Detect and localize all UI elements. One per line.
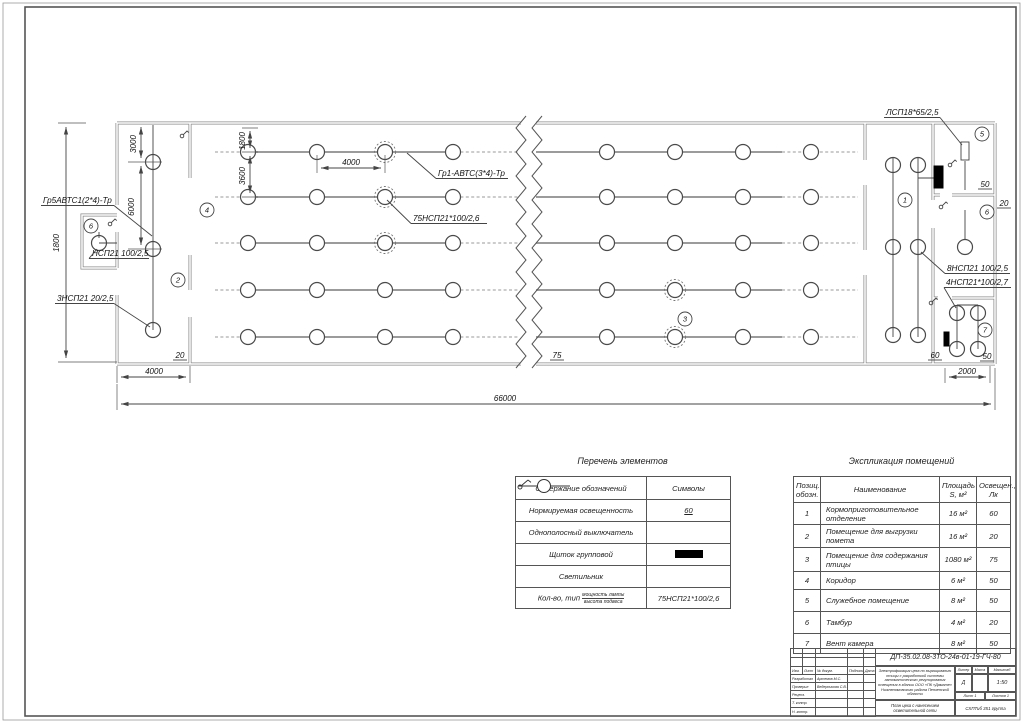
lamp-power-height-fraction: мощность лампы высота подвеса [582, 592, 624, 605]
lamp-icon [736, 330, 751, 345]
cell-pos: 1 [794, 503, 821, 525]
lamp-icon [600, 283, 615, 298]
lamp-icon [378, 190, 393, 205]
person-name [816, 699, 848, 708]
lamp-icon [736, 236, 751, 251]
liter-value: Д [955, 674, 972, 692]
cell-name: Помещение для содержания птицы [821, 548, 940, 572]
group-panels [934, 166, 949, 346]
massa-value [972, 674, 988, 692]
dim-total-length: 66000 [494, 394, 517, 403]
room-marker: 1 [898, 193, 912, 207]
col-podpis: Подпись [848, 667, 864, 675]
lamp-icon [241, 330, 256, 345]
lamp-icon [446, 145, 461, 160]
cell-pos: 3 [794, 548, 821, 572]
sheets-total: Листов 1 [985, 692, 1016, 700]
table-row: 4Коридор6 м²50 [794, 572, 1011, 590]
legend-table: Содержание обозначений Символы Нормируем… [515, 476, 731, 609]
lamp-icon [378, 283, 393, 298]
cell-pos: 4 [794, 572, 821, 590]
legend-row-name: Светильник [516, 566, 647, 588]
dim-lamp-step: 4000 [342, 158, 360, 167]
legend-lux-value: 60 [684, 506, 692, 515]
lamp-icon [378, 236, 393, 251]
label-gr1: Гр1-АВТС(3*4)-Тр [438, 169, 505, 178]
group-panel-icon [675, 550, 703, 558]
table-row: Щиток групповой [516, 544, 731, 566]
title-block-left-grid: Изм. Лист № докум. Подпись Дата Разработ… [790, 648, 876, 717]
room-number: 4 [205, 206, 209, 215]
doc-number: ДП-35.02.08-3ТО-24в-01-19-ГЧ-80 [875, 648, 1016, 666]
panel-symbol-cell [647, 544, 731, 566]
person-name: Артемов М.С. [816, 675, 848, 683]
room-marker: 4 [200, 203, 214, 217]
cell-lux: 50 [977, 590, 1011, 612]
label-nsp20: 3НСП21 20/2,5 [57, 294, 114, 303]
scale-value: 1:50 [988, 674, 1016, 692]
room-number: 6 [89, 222, 94, 231]
room-number: 2 [175, 276, 181, 285]
sheet-number: Лист 1 [955, 692, 985, 700]
header-area: Площадь S, м² [940, 477, 977, 503]
lux-room7a: 60 [931, 351, 940, 360]
explication-table: Позиц. обозн. Наименование Площадь S, м²… [793, 476, 1011, 654]
lamp-icon [600, 330, 615, 345]
lamp-icon [241, 283, 256, 298]
role-label: Разработал [791, 675, 816, 683]
table-row: Светильник [516, 566, 731, 588]
lamp-icon [736, 190, 751, 205]
room-marker: 6 [84, 219, 98, 233]
switch-dot [939, 205, 943, 209]
table-header-row: Изм. Лист № докум. Подпись Дата [791, 667, 876, 675]
dim-row2: 3600 [238, 167, 247, 185]
switch-dot [180, 134, 184, 138]
cell-area: 16 м² [940, 503, 977, 525]
cell-pos: 6 [794, 612, 821, 634]
lamp-icon [446, 236, 461, 251]
legend-row-name: Щиток групповой [516, 544, 647, 566]
col-list: Лист [803, 667, 816, 675]
dim-row1: 1800 [238, 132, 247, 150]
switch-lever [942, 202, 948, 206]
cell-pos: 2 [794, 525, 821, 548]
switch-icon [948, 160, 957, 167]
table-row: 2Помещение для выгрузки помета16 м²20 [794, 525, 1011, 548]
lamp-grid [92, 142, 986, 357]
project-description: Электрификация цеха по выращиванию птицы… [875, 666, 955, 700]
switch-dot [948, 163, 952, 167]
switch-icon [108, 219, 117, 226]
scale-label: Масштаб [988, 666, 1016, 674]
label-gr5: Гр5АВТС1(2*4)-Тр [43, 196, 112, 205]
liter-label: Литер [955, 666, 972, 674]
table-row: Кол-во, тип мощность лампы высота подвес… [516, 588, 731, 609]
table-row: 1Кормоприготовительное отделение16 м²60 [794, 503, 1011, 525]
luminaire-icon [516, 477, 572, 495]
cell-area: 6 м² [940, 572, 977, 590]
switch-icon [180, 131, 189, 138]
cell-lux: 20 [977, 525, 1011, 548]
title-block: Изм. Лист № докум. Подпись Дата Разработ… [790, 648, 1016, 716]
lamp-icon [446, 283, 461, 298]
legend-title: Перечень элементов [515, 456, 730, 466]
table-row: 3Помещение для содержания птицы1080 м²75 [794, 548, 1011, 572]
dim-3000: 3000 [129, 135, 138, 153]
label-nsp100: НСП21 100/2,5 [92, 249, 149, 258]
room-number: 1 [903, 196, 907, 205]
room-marker: 2 [171, 273, 185, 287]
drawing-title: План цеха с нанесением осветительной сет… [875, 700, 955, 716]
lamp-icon [804, 330, 819, 345]
lamp-icon [668, 145, 683, 160]
lamp-icon [600, 190, 615, 205]
label-nsp75: 75НСП21*100/2,6 [413, 214, 480, 223]
col-izm: Изм. [791, 667, 803, 675]
cell-lux: 20 [977, 612, 1011, 634]
switch-lever [951, 160, 957, 164]
lamp-icon [600, 145, 615, 160]
lux-hall: 75 [553, 351, 562, 360]
room-number: 7 [983, 326, 988, 335]
table-row: Т. контр. [791, 699, 876, 708]
lamp-icon [804, 190, 819, 205]
lamp-icon [736, 283, 751, 298]
group-name: СХПТиб 351 группа [955, 700, 1016, 716]
cell-lux: 60 [977, 503, 1011, 525]
cell-name: Кормоприготовительное отделение [821, 503, 940, 525]
legend-type-value: 75НСП21*100/2,6 [647, 588, 731, 609]
lamp-icon [310, 283, 325, 298]
switch-lever [111, 219, 117, 223]
cell-lux: 50 [977, 572, 1011, 590]
col-data: Дата [864, 667, 876, 675]
lamp-icon [958, 240, 973, 255]
lamp-icon [600, 236, 615, 251]
room-marker: 3 [678, 312, 692, 326]
room-number: 5 [980, 130, 985, 139]
legend-row-name: Нормируемая освещенность [516, 500, 647, 522]
person-name: Ведерникова С.В. [816, 683, 848, 691]
dim-height: 1800 [52, 234, 61, 252]
header-lux: Освещен., Лк [977, 477, 1011, 503]
lux-room5: 50 [981, 180, 990, 189]
header-name: Наименование [821, 477, 940, 503]
table-row: Однополосный выключатель [516, 522, 731, 544]
table-row: Н. контр. [791, 708, 876, 717]
switch-dot [108, 222, 112, 226]
role-label: Реценз. [791, 691, 816, 699]
break-line [516, 116, 542, 372]
switch-lever [183, 131, 189, 135]
dim-6000: 6000 [127, 198, 136, 216]
cell-area: 16 м² [940, 525, 977, 548]
lamp-icon [804, 283, 819, 298]
table-row [791, 649, 876, 658]
switch-icon [939, 202, 948, 209]
cell-area: 8 м² [940, 590, 977, 612]
table-row: Реценз. [791, 691, 876, 699]
lamp-icon [736, 145, 751, 160]
table-row [791, 658, 876, 667]
lamp-icon [310, 236, 325, 251]
lamp-icon [241, 236, 256, 251]
room-marker: 6 [980, 205, 994, 219]
drawing-sheet: 1800 3000 6000 1800 3600 4000 4000 2000 … [0, 0, 1024, 724]
legend-row-name: Однополосный выключатель [516, 522, 647, 544]
group-panel-icon [944, 332, 949, 346]
lux-room7b: 50 [983, 352, 992, 361]
cell-name: Тамбур [821, 612, 940, 634]
cell-area: 1080 м² [940, 548, 977, 572]
table-row: ПроверилВедерникова С.В. [791, 683, 876, 691]
switch-symbol-cell [647, 522, 731, 544]
col-docnum: № докум. [816, 667, 848, 675]
header-pos: Позиц. обозн. [794, 477, 821, 503]
group-panel-icon [934, 166, 943, 188]
label-lsp18: ЛСП18*65/2,5 [885, 108, 939, 117]
lamp-icon [668, 283, 683, 298]
lux-room6: 20 [999, 199, 1009, 208]
lamp-icon [668, 190, 683, 205]
room-marker: 5 [975, 127, 989, 141]
person-name [816, 708, 848, 717]
cell-lux: 75 [977, 548, 1011, 572]
lux-corridor: 20 [175, 351, 185, 360]
room-number: 3 [683, 315, 688, 324]
lamp-icon [310, 330, 325, 345]
lamp-icon [378, 330, 393, 345]
lamp-icon [310, 190, 325, 205]
cell-name: Помещение для выгрузки помета [821, 525, 940, 548]
cell-name: Коридор [821, 572, 940, 590]
lamp-icon [668, 236, 683, 251]
person-name [816, 691, 848, 699]
role-label: Т. контр. [791, 699, 816, 708]
table-row: 5Служебное помещение8 м²50 [794, 590, 1011, 612]
lamp-icon [446, 190, 461, 205]
lamp-icon [446, 330, 461, 345]
label-nsp4: 4НСП21*100/2,7 [946, 278, 1008, 287]
side-room-wiring [99, 125, 978, 349]
table-row: Нормируемая освещенность 60 [516, 500, 731, 522]
cell-area: 4 м² [940, 612, 977, 634]
room-number: 6 [985, 208, 990, 217]
explication-title: Экспликация помещений [793, 456, 1010, 466]
table-header-row: Позиц. обозн. Наименование Площадь S, м²… [794, 477, 1011, 503]
lamp-symbol-cell [647, 566, 731, 588]
label-nsp8: 8НСП21 100/2,5 [947, 264, 1008, 273]
table-row: РазработалАртемов М.С. [791, 675, 876, 683]
dim-right-room: 2000 [957, 367, 976, 376]
table-row: 6Тамбур4 м²20 [794, 612, 1011, 634]
legend-col2-header: Символы [647, 477, 731, 500]
legend-row-name: Кол-во, тип мощность лампы высота подвес… [516, 588, 647, 609]
room-marker: 7 [978, 323, 992, 337]
role-label: Проверил [791, 683, 816, 691]
massa-label: Масса [972, 666, 988, 674]
lamp-icon [668, 330, 683, 345]
lamp-icon [804, 236, 819, 251]
cell-pos: 5 [794, 590, 821, 612]
cell-name: Служебное помещение [821, 590, 940, 612]
role-label: Н. контр. [791, 708, 816, 717]
dim-corridor: 4000 [145, 367, 163, 376]
lamp-icon [804, 145, 819, 160]
